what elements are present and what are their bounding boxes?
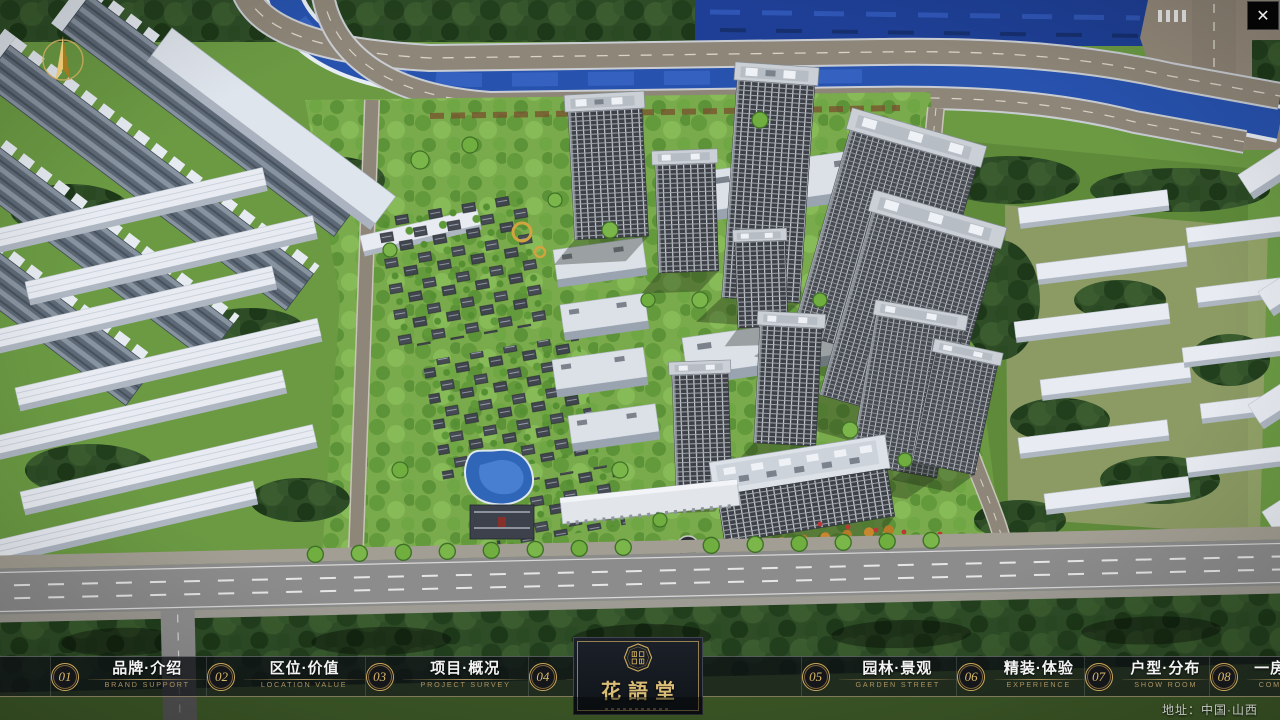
menu-number-badge: 06	[957, 663, 985, 691]
menu-label-en: COMMUNITY	[1259, 682, 1280, 689]
masterplan-aerial-render	[0, 0, 1280, 720]
menu-item-brand[interactable]: 01 品牌·介绍BRAND SUPPORT	[51, 657, 207, 696]
menu-label-cn: 精装·体验	[1004, 661, 1074, 676]
menu-label-cn: 区位·价值	[270, 661, 340, 676]
menu-label-en: PROJECT SURVEY	[420, 682, 510, 689]
menu-number-badge: 04	[529, 663, 557, 691]
menu-label-en: EXPERIENCE	[1007, 682, 1071, 689]
seal-emblem-icon	[622, 642, 654, 673]
menu-label-en: SHOW ROOM	[1134, 682, 1197, 689]
menu-label-cn: 户型·分布	[1130, 661, 1200, 676]
close-icon: ✕	[1256, 8, 1269, 25]
compass-icon	[36, 32, 90, 88]
menu-number-badge: 02	[207, 663, 235, 691]
bar-spacer	[0, 657, 51, 696]
close-button[interactable]: ✕	[1247, 1, 1279, 30]
menu-item-location[interactable]: 02 区位·价值LOCATION VALUE	[207, 657, 365, 696]
menu-number-badge: 01	[51, 663, 79, 691]
menu-number-badge: 08	[1210, 663, 1238, 691]
menu-label-cn: 品牌·介绍	[112, 661, 182, 676]
menu-label-en: GARDEN STREET	[855, 682, 940, 689]
menu-item-interior[interactable]: 06 精装·体验EXPERIENCE	[956, 657, 1083, 696]
menu-item-views[interactable]: 08 一房·一景COMMUNITY	[1209, 657, 1280, 696]
menu-label-cn: 一房·一景	[1254, 661, 1280, 676]
menu-item-landscape[interactable]: 05 园林·景观GARDEN STREET	[801, 657, 957, 696]
menu-item-floorplan[interactable]: 07 户型·分布SHOW ROOM	[1084, 657, 1210, 696]
menu-number-badge: 05	[802, 663, 830, 691]
menu-label-cn: 园林·景观	[862, 661, 932, 676]
presentation-window: ✕ 01 品牌·介绍BRAND SUPPORT 02 区位·价值LOCATION…	[0, 0, 1280, 720]
project-address: 地址：中国·山西	[1162, 701, 1258, 718]
menu-number-badge: 07	[1085, 663, 1113, 691]
menu-label-cn: 项目·概况	[430, 661, 500, 676]
menu-item-project[interactable]: 03 项目·概况PROJECT SURVEY	[366, 657, 529, 696]
menu-label-en: LOCATION VALUE	[261, 682, 348, 689]
menu-number-badge: 03	[366, 663, 394, 691]
bottom-strip	[0, 697, 1280, 720]
menu-label-en: BRAND SUPPORT	[105, 682, 190, 689]
